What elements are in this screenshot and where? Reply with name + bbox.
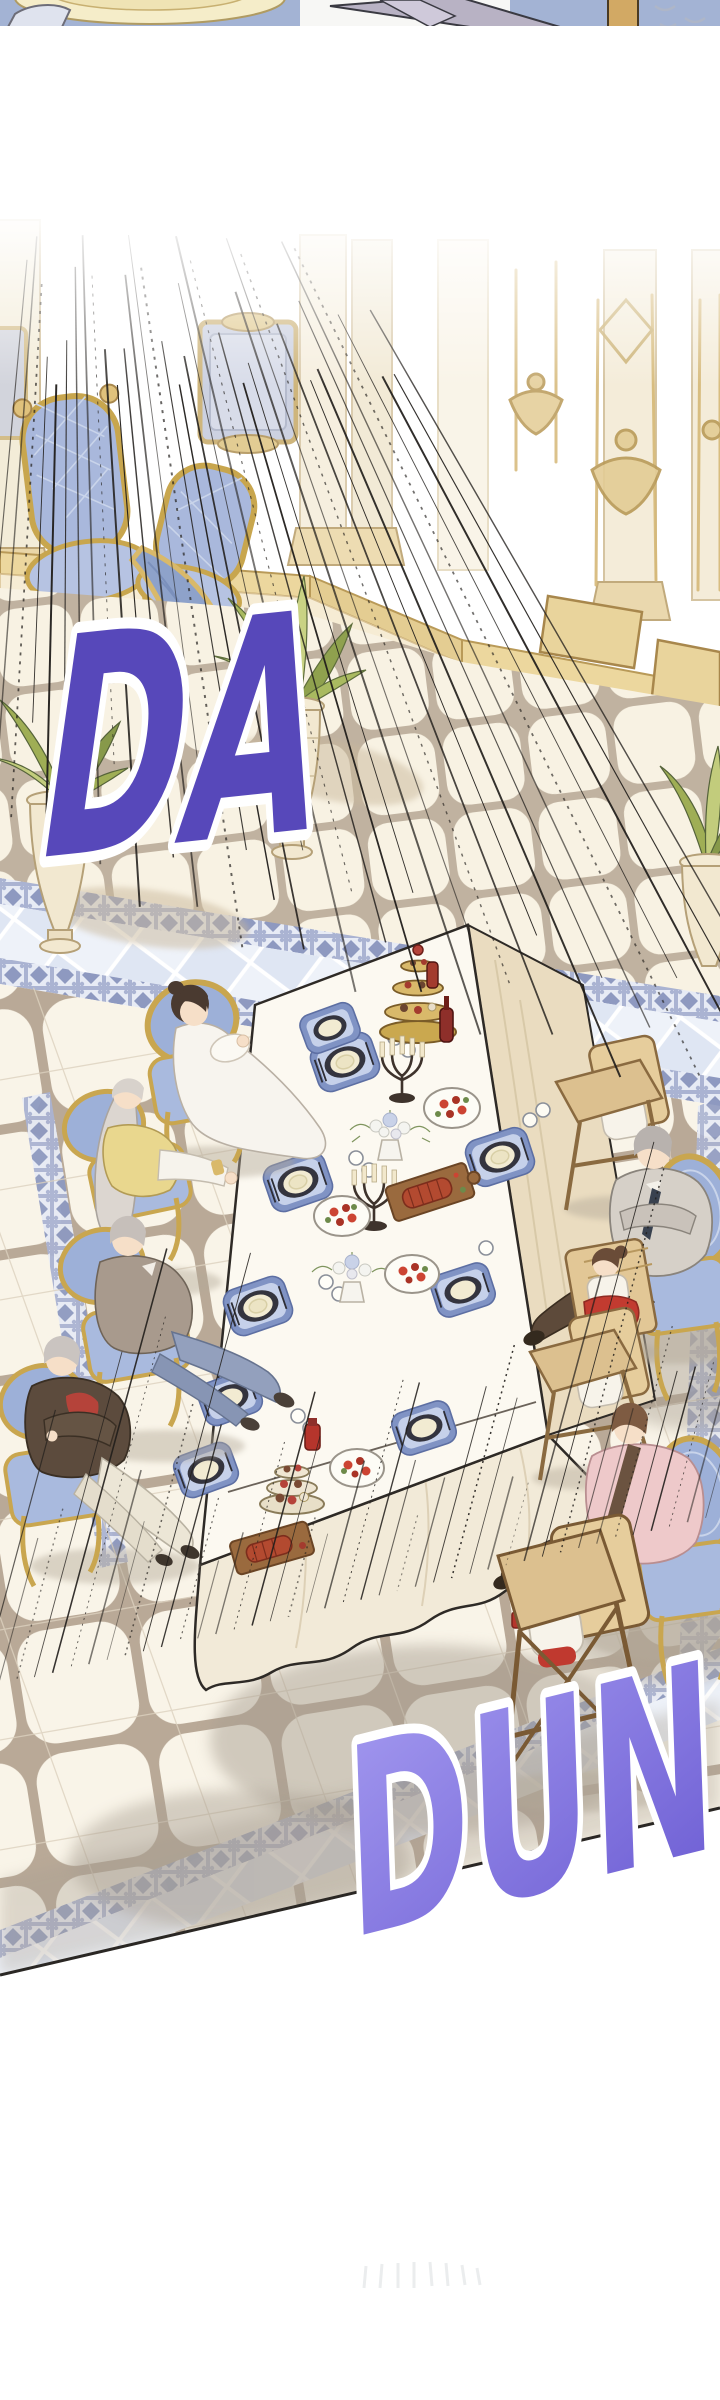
- sfx-da: DA: [20, 546, 348, 932]
- salad-plate: [385, 1255, 439, 1293]
- previous-panel-strip: [0, 0, 720, 30]
- faint-bottom-marks: [364, 2262, 480, 2288]
- salad-plate: [330, 1449, 384, 1487]
- salad-plate: [424, 1088, 480, 1128]
- top-fade: [0, 26, 720, 386]
- webtoon-panel: DA DUN: [0, 0, 720, 2400]
- salad-plate: [314, 1196, 370, 1236]
